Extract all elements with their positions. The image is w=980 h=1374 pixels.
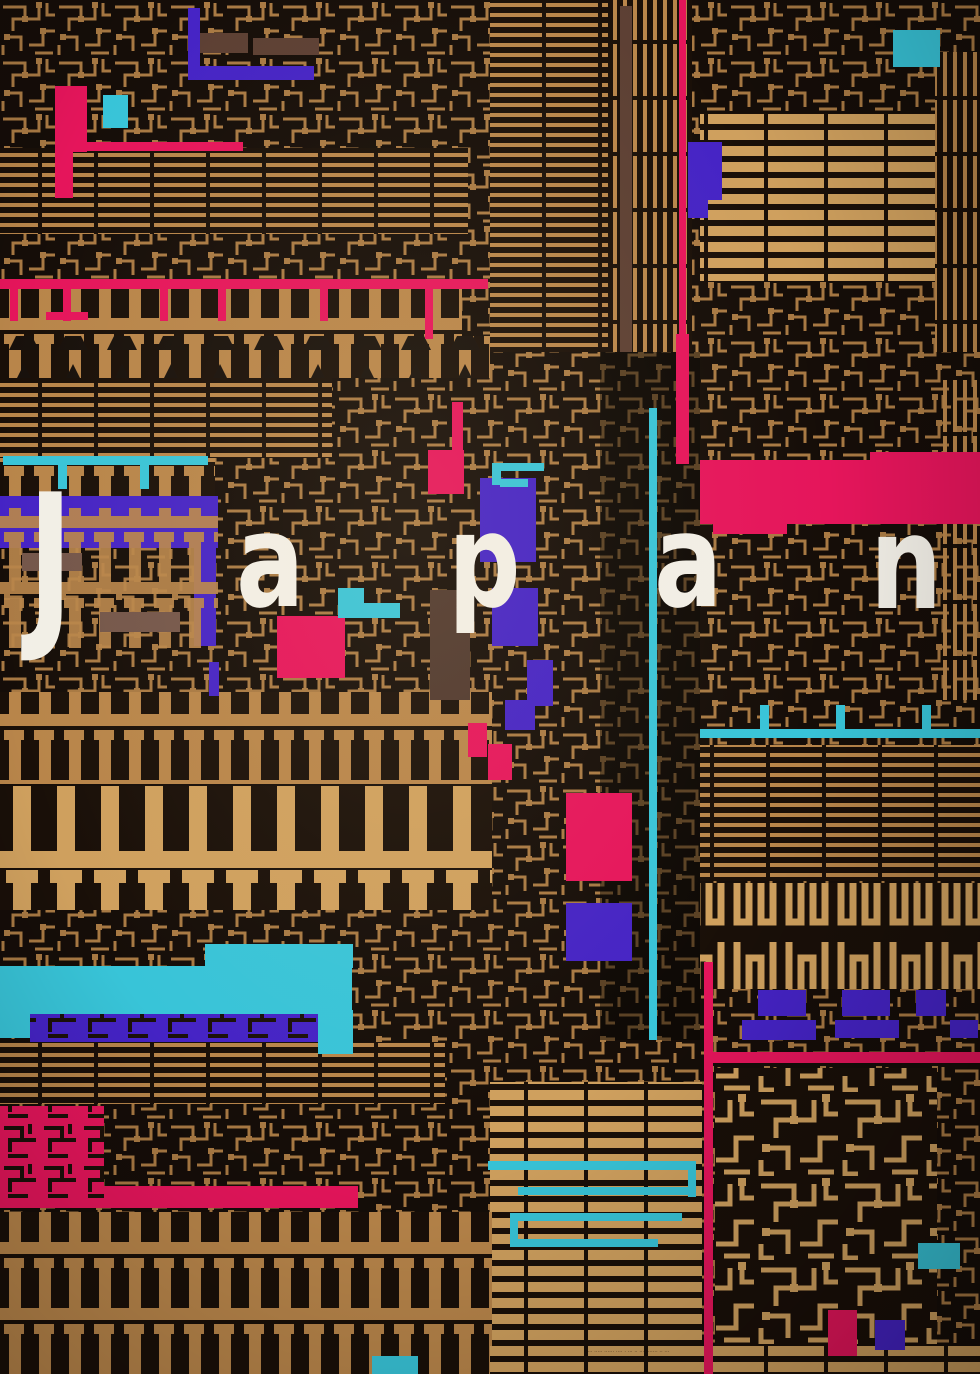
japan-circuit-poster: J a p a n ···· ····· ······ ···· · ··· ·…: [0, 0, 980, 1374]
micro-credit-text: ···· ····· ······ ···· · ··· ·· ···· ···…: [586, 1349, 696, 1354]
magenta-maze-overlay: [0, 1106, 104, 1204]
circuit-board-artwork: [0, 0, 980, 1374]
title-letter-j: J: [28, 470, 73, 652]
title-letter-p: p: [448, 496, 521, 626]
title-letter-a1: a: [236, 496, 304, 626]
title-letter-a2: a: [654, 496, 722, 626]
title-letter-n: n: [870, 498, 942, 628]
